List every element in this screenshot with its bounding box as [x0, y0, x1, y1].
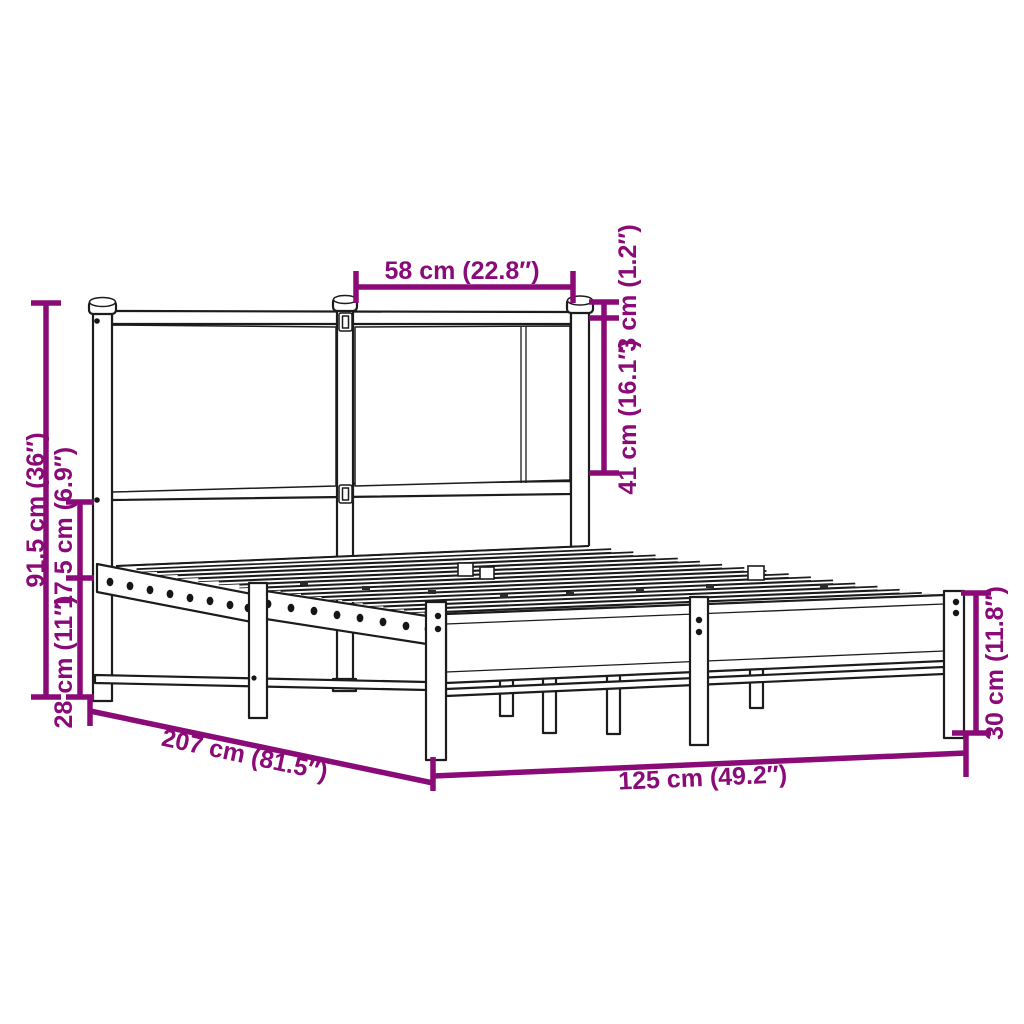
left-post-cap-top	[90, 298, 116, 307]
slat-clip	[748, 566, 764, 580]
dimension-rail-gap-and-clearance: 17,5 cm (6.9″) 28 cm (11″)	[50, 447, 94, 728]
dim-3-label: 3 cm (1.2″)	[614, 224, 642, 351]
dim-207-label: 207 cm (81.5″)	[159, 724, 330, 787]
diagram-canvas: 58 cm (22.8″) 3 cm (1.2″) 41 cm (16.1″) …	[0, 0, 1024, 1024]
middle-post-cap-top	[334, 296, 357, 304]
headboard-left-panel	[112, 325, 336, 492]
dim-125-label: 125 cm (49.2″)	[618, 760, 788, 795]
side-mid-leg	[249, 583, 267, 718]
dimension-headboard-panel-height: 41 cm (16.1″)	[589, 318, 642, 495]
headboard-left-post	[93, 312, 112, 701]
dim-91-label: 91,5 cm (36″)	[22, 432, 50, 587]
headboard-right-panel	[355, 326, 570, 486]
dim-30-label: 30 cm (11.8″)	[981, 586, 1009, 740]
bed-frame-drawing	[89, 296, 964, 761]
dimension-top-rail-thickness: 3 cm (1.2″)	[589, 224, 642, 351]
slat-clip	[480, 567, 494, 579]
bed-frame-dimension-diagram: 58 cm (22.8″) 3 cm (1.2″) 41 cm (16.1″) …	[0, 0, 1024, 1024]
dim-17-label: 17,5 cm (6.9″)	[50, 447, 78, 609]
dimension-headboard-section-width: 58 cm (22.8″)	[356, 257, 573, 303]
dim-58-label: 58 cm (22.8″)	[384, 257, 539, 285]
dim-41-label: 41 cm (16.1″)	[614, 339, 642, 494]
front-left-corner-leg	[426, 602, 446, 760]
slat-clip	[458, 563, 473, 576]
dim-28-label: 28 cm (11″)	[50, 596, 78, 729]
